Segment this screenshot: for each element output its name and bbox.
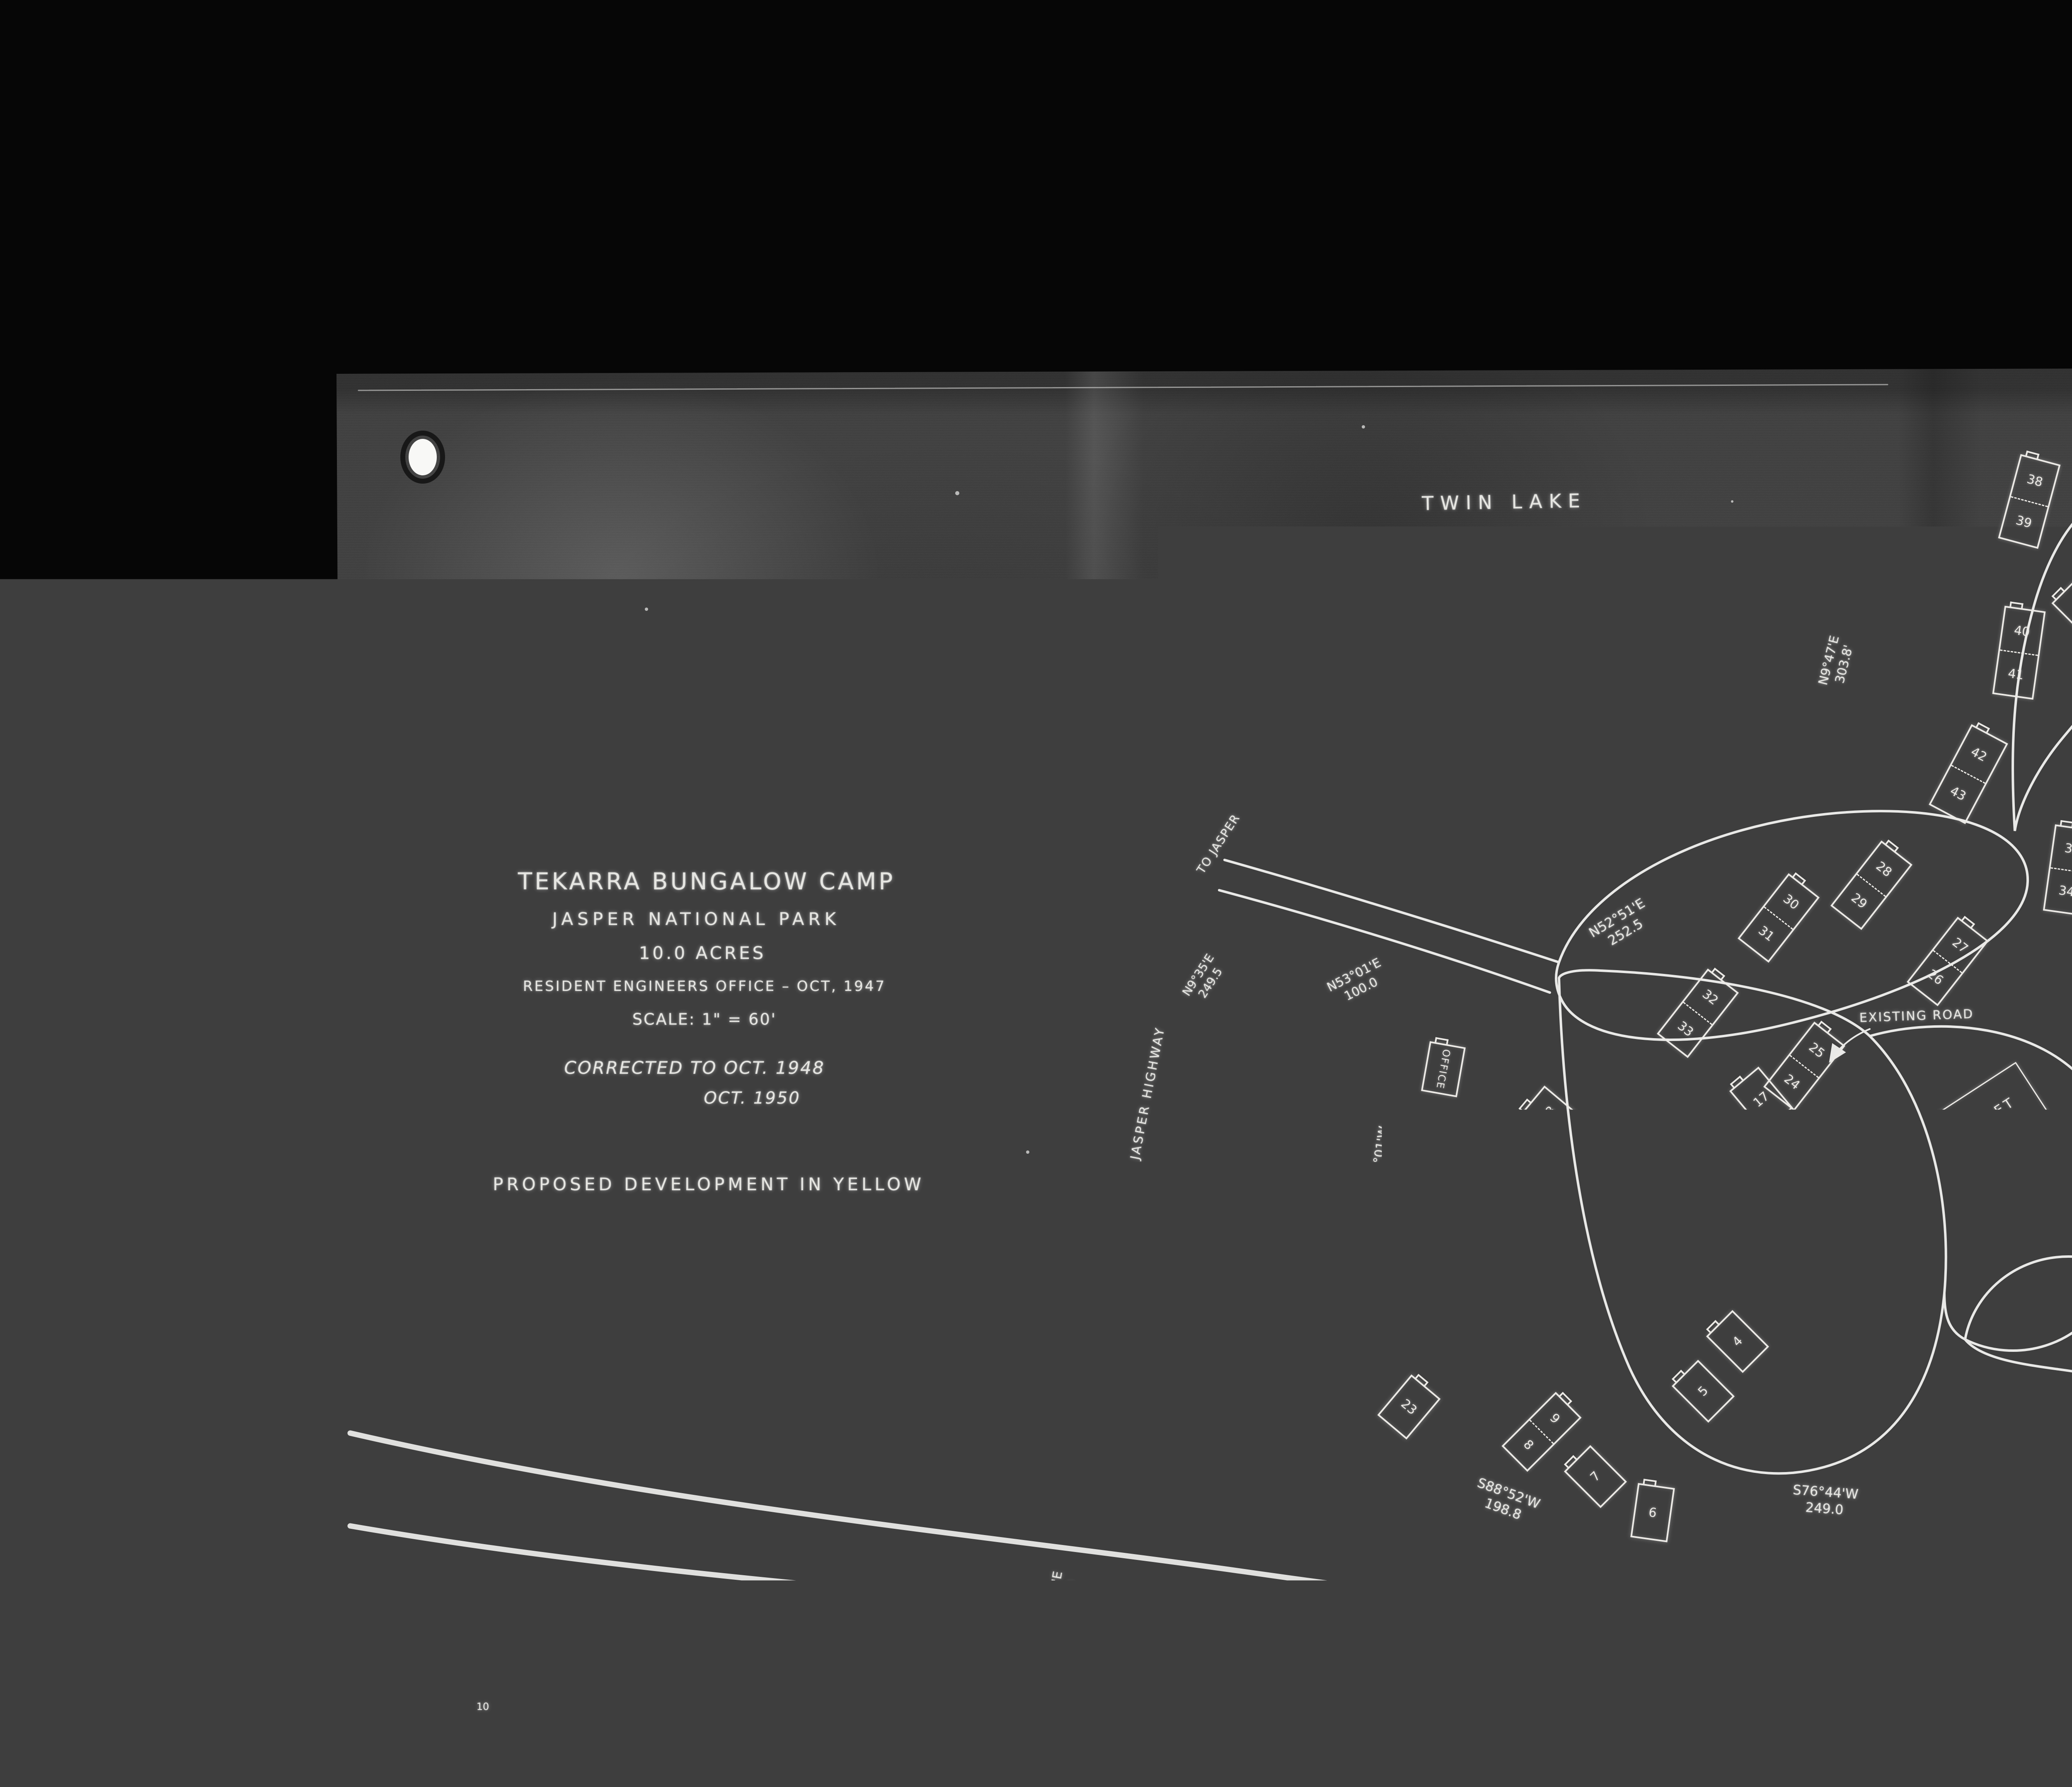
label-point-10: 10	[477, 1700, 489, 1713]
title-corrected: CORRECTED TO OCT. 1948	[564, 1057, 825, 1079]
title-acres: 10.0 ACRES	[639, 942, 766, 964]
title-scale: SCALE: 1" = 60'	[632, 1010, 777, 1029]
label-river: RIVER	[1910, 1675, 1986, 1700]
bearing-s7644w: S76°44'W249.0	[1791, 1482, 1859, 1519]
microfilm-frame: TEKARRA BUNGALOW CAMP JASPER NATIONAL PA…	[0, 0, 2072, 1787]
title-proposed-note: PROPOSED DEVELOPMENT IN YELLOW	[493, 1174, 925, 1196]
title-park: JASPER NATIONAL PARK	[552, 908, 840, 930]
page-title: TEKARRA BUNGALOW CAMP	[518, 867, 895, 896]
title-corrected-2: OCT. 1950	[704, 1088, 800, 1109]
title-office-date: RESIDENT ENGINEERS OFFICE – OCT, 1947	[523, 978, 886, 995]
map-linework	[0, 0, 2072, 1787]
label-point-9: 9	[442, 1687, 448, 1700]
label-twin-lake: TWIN LAKE	[1422, 489, 1587, 516]
cabin-6: 6	[1630, 1483, 1675, 1542]
